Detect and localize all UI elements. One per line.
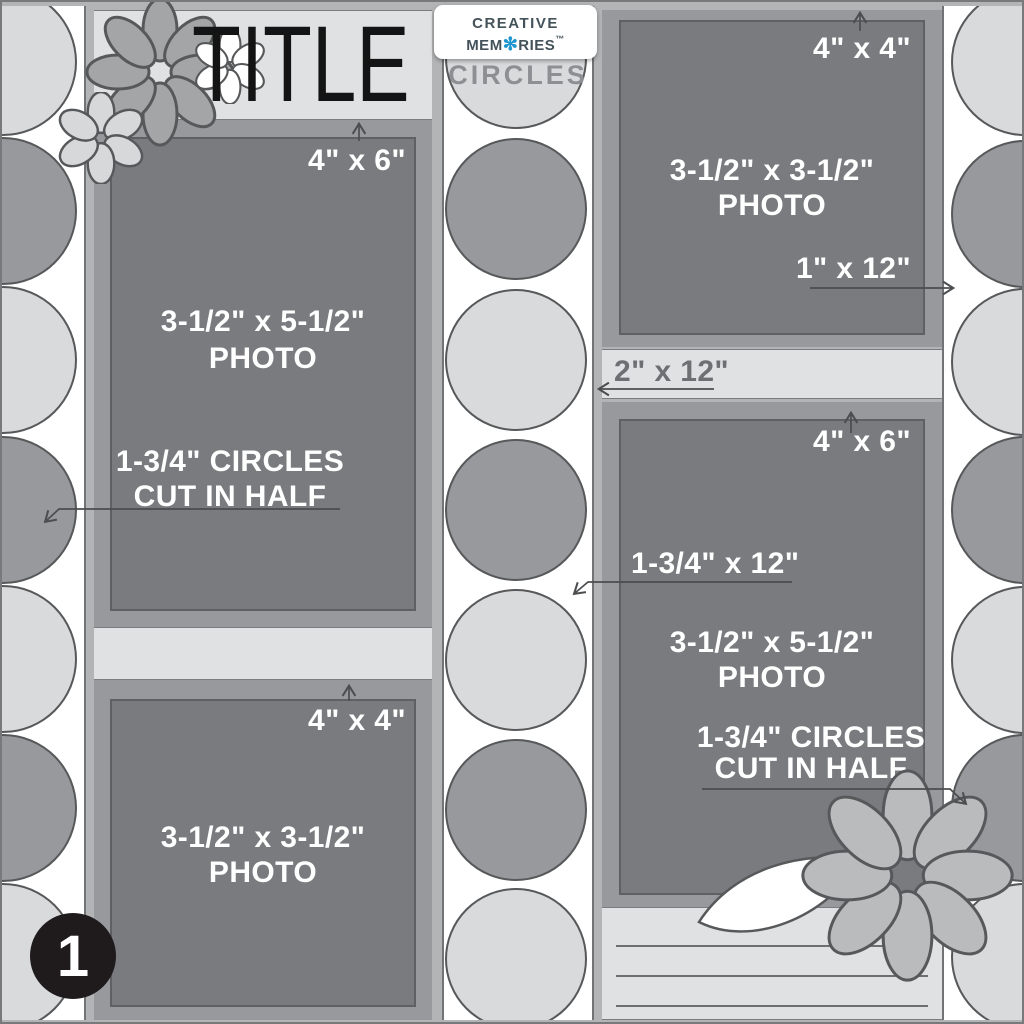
dark-circle xyxy=(445,439,587,581)
dark-circle xyxy=(445,739,587,881)
trademark-symbol: ™ xyxy=(555,34,565,44)
dark-circle xyxy=(2,734,77,882)
light-circle xyxy=(951,6,1024,136)
middle-circles-column xyxy=(442,6,594,1020)
logo-word-memories: mem✻ries™ xyxy=(466,33,565,54)
size-label-left-4x6: 4" x 6" xyxy=(308,144,406,178)
dark-circle xyxy=(951,436,1024,584)
size-label-right-4x4: 4" x 4" xyxy=(813,32,911,66)
circles-note-line1: 1-3/4" CIRCLES xyxy=(94,445,366,479)
strip-2x12: 2" x 12" xyxy=(602,349,942,399)
photo-size-line2: PHOTO xyxy=(621,661,923,695)
light-circle xyxy=(445,289,587,431)
page-number-badge: 1 xyxy=(30,913,116,999)
collection-name: CIRCLES xyxy=(442,60,594,91)
photo-size-line1: 3-1/2" x 3-1/2" xyxy=(112,821,414,855)
light-circle xyxy=(445,589,587,731)
page-title: TITLE xyxy=(192,10,410,118)
photo-size-line2: PHOTO xyxy=(112,342,414,376)
strip-label-1x12: 1" x 12" xyxy=(796,252,911,286)
scrapbook-sketch-page: 4" x 6" 3-1/2" x 5-1/2" PHOTO 1-3/4" CIR… xyxy=(0,0,1024,1024)
strip-label-134x12: 1-3/4" x 12" xyxy=(631,547,799,581)
photo-size-line1: 3-1/2" x 5-1/2" xyxy=(621,626,923,660)
flower-small-light-icon xyxy=(55,92,147,184)
circles-note-line2: CUT IN HALF xyxy=(94,480,366,514)
photo-placeholder-right-top: 4" x 4" 3-1/2" x 3-1/2" PHOTO 1" x 12" xyxy=(619,20,925,335)
photo-size-line2: PHOTO xyxy=(621,189,923,223)
photo-size-line1: 3-1/2" x 3-1/2" xyxy=(621,154,923,188)
strip-label-2x12: 2" x 12" xyxy=(614,355,729,389)
dark-circle xyxy=(2,436,77,584)
photo-size-line1: 3-1/2" x 5-1/2" xyxy=(112,305,414,339)
light-circle xyxy=(2,585,77,733)
photo-size-line2: PHOTO xyxy=(112,856,414,890)
photo-placeholder-left-top: 4" x 6" 3-1/2" x 5-1/2" PHOTO 1-3/4" CIR… xyxy=(110,137,416,611)
circles-note-line1: 1-3/4" CIRCLES xyxy=(693,721,929,755)
divider-strip-left xyxy=(94,627,432,680)
photo-mat-4x4-right: 4" x 4" 3-1/2" x 3-1/2" PHOTO 1" x 12" xyxy=(602,10,942,347)
photo-mat-4x4-left: 4" x 4" 3-1/2" x 3-1/2" PHOTO xyxy=(94,680,432,1020)
size-label-right-4x6: 4" x 6" xyxy=(813,425,911,459)
size-label-left-4x4: 4" x 4" xyxy=(308,704,406,738)
photo-placeholder-left-bottom: 4" x 4" 3-1/2" x 3-1/2" PHOTO xyxy=(110,699,416,1007)
photo-mat-4x6-left: 4" x 6" 3-1/2" x 5-1/2" PHOTO 1-3/4" CIR… xyxy=(94,120,432,627)
light-circle xyxy=(2,286,77,434)
logo-flower-icon: ✻ xyxy=(503,34,519,54)
page-number: 1 xyxy=(57,923,89,990)
flower-bottom-right-icon xyxy=(800,768,1015,983)
creative-memories-logo: creative mem✻ries™ xyxy=(434,5,597,59)
journal-line xyxy=(616,1005,928,1007)
dark-circle xyxy=(445,138,587,280)
light-circle xyxy=(951,288,1024,436)
dark-circle xyxy=(951,140,1024,288)
light-circle xyxy=(951,586,1024,734)
light-circle xyxy=(445,888,587,1020)
logo-word-creative: creative xyxy=(472,11,559,32)
